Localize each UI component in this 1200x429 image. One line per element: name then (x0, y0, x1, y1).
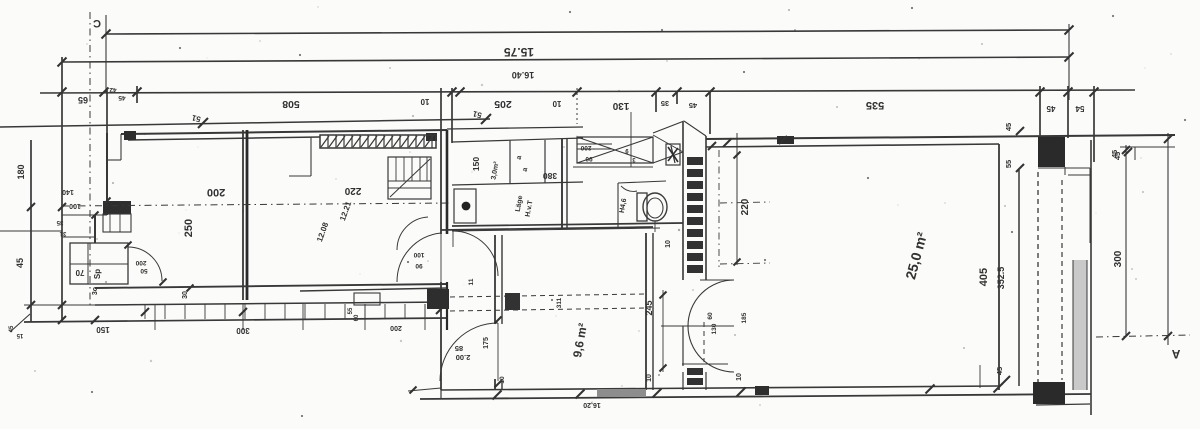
svg-text:175: 175 (483, 337, 490, 349)
svg-text:311: 311 (556, 297, 563, 308)
svg-text:70: 70 (75, 268, 84, 277)
svg-text:55: 55 (1004, 160, 1013, 168)
svg-text:205: 205 (494, 98, 512, 110)
svg-text:10: 10 (552, 99, 561, 108)
svg-text:300: 300 (1113, 250, 1124, 267)
svg-text:10: 10 (736, 373, 743, 381)
svg-text:A: A (1171, 347, 1180, 361)
svg-text:200: 200 (135, 259, 146, 266)
svg-text:Sp: Sp (93, 269, 102, 279)
svg-text:45: 45 (15, 258, 25, 268)
svg-text:508: 508 (282, 98, 300, 110)
svg-text:60: 60 (707, 312, 714, 320)
svg-text:2.00: 2.00 (456, 353, 471, 362)
svg-text:405: 405 (978, 268, 990, 286)
svg-text:352.5: 352.5 (996, 267, 1006, 290)
svg-text:65: 65 (78, 95, 88, 105)
svg-text:15.75: 15.75 (504, 45, 534, 59)
svg-text:10: 10 (420, 97, 429, 106)
svg-text:130: 130 (612, 100, 629, 111)
svg-text:185: 185 (741, 312, 748, 323)
svg-text:16,20: 16,20 (583, 401, 601, 408)
svg-text:55: 55 (348, 307, 354, 314)
svg-text:90: 90 (585, 155, 593, 162)
svg-text:300: 300 (236, 326, 250, 335)
svg-text:535: 535 (866, 99, 884, 111)
svg-text:150: 150 (96, 325, 110, 334)
svg-text:45: 45 (1046, 104, 1055, 113)
svg-text:16.40: 16.40 (512, 70, 535, 80)
svg-text:90: 90 (415, 262, 423, 269)
svg-text:35: 35 (56, 219, 63, 225)
svg-text:220: 220 (740, 198, 751, 215)
svg-text:140: 140 (62, 188, 74, 195)
svg-text:200: 200 (207, 186, 225, 198)
svg-text:45: 45 (1110, 150, 1119, 158)
svg-text:380: 380 (543, 171, 557, 181)
svg-text:45: 45 (689, 101, 697, 110)
svg-text:220: 220 (344, 185, 361, 196)
svg-text:85: 85 (455, 344, 463, 353)
svg-text:60: 60 (354, 314, 360, 321)
svg-text:245: 245 (644, 300, 654, 315)
svg-text:150: 150 (471, 157, 481, 171)
svg-text:200: 200 (580, 144, 591, 151)
svg-text:35: 35 (661, 99, 669, 108)
svg-text:50: 50 (140, 267, 148, 274)
svg-text:31: 31 (59, 230, 66, 236)
svg-text:45: 45 (118, 94, 126, 101)
svg-text:250: 250 (183, 219, 195, 237)
svg-text:45: 45 (995, 367, 1004, 375)
svg-text:C: C (93, 17, 101, 29)
svg-text:42: 42 (109, 86, 117, 93)
svg-text:130: 130 (711, 323, 718, 334)
svg-text:200: 200 (390, 324, 402, 331)
svg-text:10: 10 (646, 374, 653, 382)
svg-text:10: 10 (499, 376, 506, 384)
svg-text:100: 100 (413, 251, 424, 258)
svg-text:30: 30 (182, 291, 189, 299)
svg-text:180: 180 (16, 164, 26, 179)
svg-text:45: 45 (1004, 123, 1013, 131)
svg-text:11: 11 (468, 278, 475, 285)
svg-text:15: 15 (16, 332, 23, 338)
svg-text:54: 54 (1075, 104, 1084, 113)
svg-text:10: 10 (665, 240, 672, 248)
svg-text:45: 45 (9, 325, 15, 332)
